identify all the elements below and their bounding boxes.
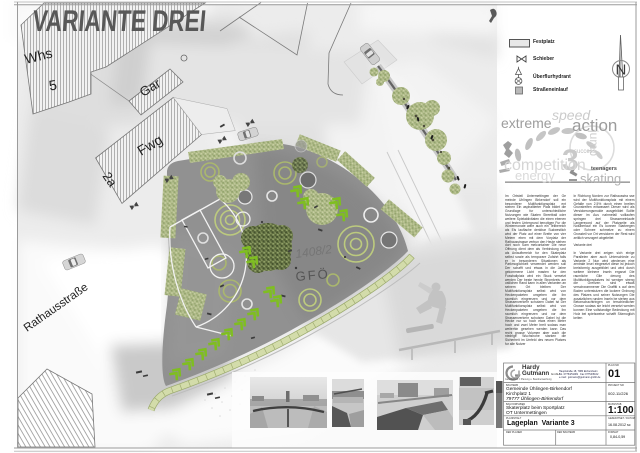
svg-text:GFÖ: GFÖ [295, 266, 330, 284]
svg-text:VARIANTE DREI: VARIANTE DREI [31, 4, 207, 38]
svg-text:N: N [616, 62, 627, 79]
